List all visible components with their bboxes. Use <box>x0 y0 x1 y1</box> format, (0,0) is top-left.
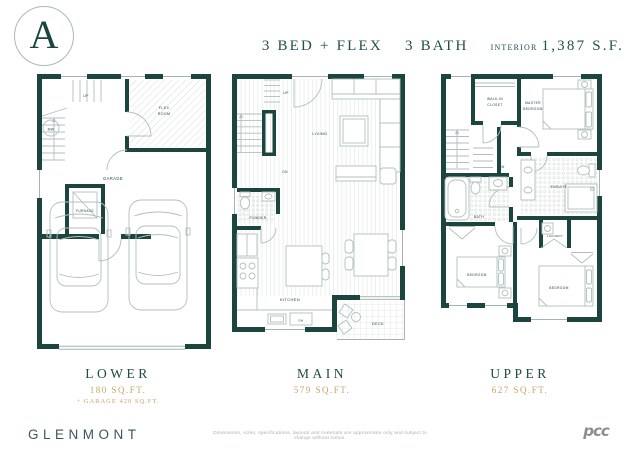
plan-area-note-lower: + GARAGE 420 SQ.FT. <box>28 398 208 405</box>
sink-icon <box>262 192 275 201</box>
stairs-icon <box>446 129 493 169</box>
plan-title-main: MAIN <box>232 366 412 382</box>
room-label-walkin-2: CLOSET <box>487 103 502 107</box>
room-label-deck: DECK <box>372 322 384 326</box>
bedroom-right-bed-icon <box>539 253 593 307</box>
armchair-icon <box>380 168 396 184</box>
coffee-table-icon <box>340 116 368 146</box>
room-label-bedroom-left: BEDROOM <box>467 273 487 277</box>
garage-door <box>59 346 185 349</box>
room-label-flex-1: FLEX <box>159 106 170 110</box>
main-floorplan-drawing: UP DN LIVING POWDER KITCHEN DW DECK <box>228 70 420 355</box>
stove-icon <box>237 258 258 288</box>
closet-rod <box>475 83 515 87</box>
bathtub-icon <box>445 177 469 220</box>
main-caption: MAIN 579 SQ.FT. <box>232 366 412 395</box>
room-label-mw: MW <box>48 128 55 132</box>
room-label-kitchen: KITCHEN <box>280 297 300 302</box>
room-label-bath: BATH <box>474 215 484 219</box>
bedroom-left-bed-icon <box>449 227 511 299</box>
unit-badge: A <box>14 6 74 66</box>
bath-toilet-icon <box>470 177 481 194</box>
lower-floorplan: UP MW FURNACE FLEX ROOM GARAGE <box>33 70 215 355</box>
room-label-master-2: BEDROOM <box>523 107 543 111</box>
room-label-living: LIVING <box>312 131 327 136</box>
upper-floorplan: WALK-IN CLOSET MASTER BEDROOM DN BATH EN… <box>437 70 609 330</box>
car-icon <box>126 200 190 310</box>
lower-floorplan-drawing: UP MW FURNACE FLEX ROOM GARAGE <box>33 70 215 355</box>
plan-area-main: 579 SQ.FT. <box>232 385 412 395</box>
room-label-flex-2: ROOM <box>158 112 171 116</box>
upper-caption: UPPER 627 SQ.FT. <box>430 366 610 395</box>
fridge-icon <box>237 234 257 256</box>
room-label-furnace: FURNACE <box>76 209 94 213</box>
bath-sink-icon <box>489 177 507 190</box>
room-label-ensuite: ENSUITE <box>551 185 568 189</box>
room-label-dn: DN <box>282 170 288 174</box>
loveseat-icon <box>336 166 376 181</box>
spec-interior-area: 1,387 S.F. <box>542 38 624 54</box>
shower-icon <box>565 184 597 212</box>
room-label-laundry: LAUNDRY <box>547 234 563 238</box>
room-label-powder: POWDER <box>250 216 267 220</box>
room-label-bedroom-right: BEDROOM <box>549 286 569 290</box>
ensuite-vanity-icon <box>521 160 535 200</box>
room-label-garage: GARAGE <box>103 176 123 181</box>
toilet-icon <box>240 192 250 209</box>
brand-glenmont: GLENMONT <box>28 427 141 442</box>
room-label-dn: DN <box>499 165 505 169</box>
upper-floorplan-drawing: WALK-IN CLOSET MASTER BEDROOM DN BATH EN… <box>437 70 609 330</box>
plan-title-lower: LOWER <box>28 366 208 382</box>
room-label-dw: DW <box>298 319 303 323</box>
footer-disclaimer: Dimensions, sizes, specifications, layou… <box>205 431 435 441</box>
deck-slider-door <box>360 297 400 300</box>
pcc-logo: pcc <box>576 419 616 443</box>
room-label-up: UP <box>283 91 289 95</box>
main-floorplan: UP DN LIVING POWDER KITCHEN DW DECK <box>228 70 420 355</box>
plan-title-upper: UPPER <box>430 366 610 382</box>
lower-caption: LOWER 180 SQ.FT. + GARAGE 420 SQ.FT. <box>28 366 208 405</box>
unit-letter: A <box>30 15 59 55</box>
room-label-master-1: MASTER <box>525 101 541 105</box>
spec-beds: 3 BED + FLEX <box>262 38 383 54</box>
plan-area-lower: 180 SQ.FT. <box>28 385 208 395</box>
room-label-up: UP <box>83 94 89 98</box>
spec-baths: 3 BATH <box>405 38 469 54</box>
spec-interior-label: INTERIOR <box>491 43 538 52</box>
plan-specs: 3 BED + FLEX3 BATHINTERIOR 1,387 S.F. <box>262 37 624 55</box>
room-label-walkin-1: WALK-IN <box>487 97 503 101</box>
plan-area-upper: 627 SQ.FT. <box>430 385 610 395</box>
master-bed-icon <box>543 80 593 139</box>
